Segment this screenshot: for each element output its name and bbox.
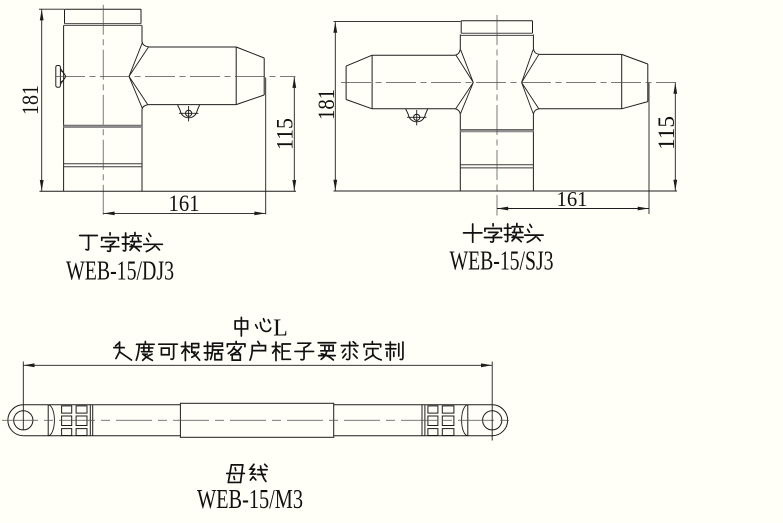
- svg-text:161: 161: [557, 187, 588, 211]
- svg-text:L: L: [273, 316, 288, 342]
- svg-text:WEB-15/DJ3: WEB-15/DJ3: [66, 256, 174, 286]
- svg-text:181: 181: [18, 85, 43, 115]
- svg-text:161: 161: [169, 191, 200, 216]
- svg-text:115: 115: [654, 116, 679, 150]
- svg-text:181: 181: [314, 89, 339, 120]
- svg-text:WEB-15/SJ3: WEB-15/SJ3: [450, 246, 554, 276]
- svg-text:115: 115: [273, 118, 298, 150]
- svg-text:WEB-15/M3: WEB-15/M3: [197, 484, 303, 514]
